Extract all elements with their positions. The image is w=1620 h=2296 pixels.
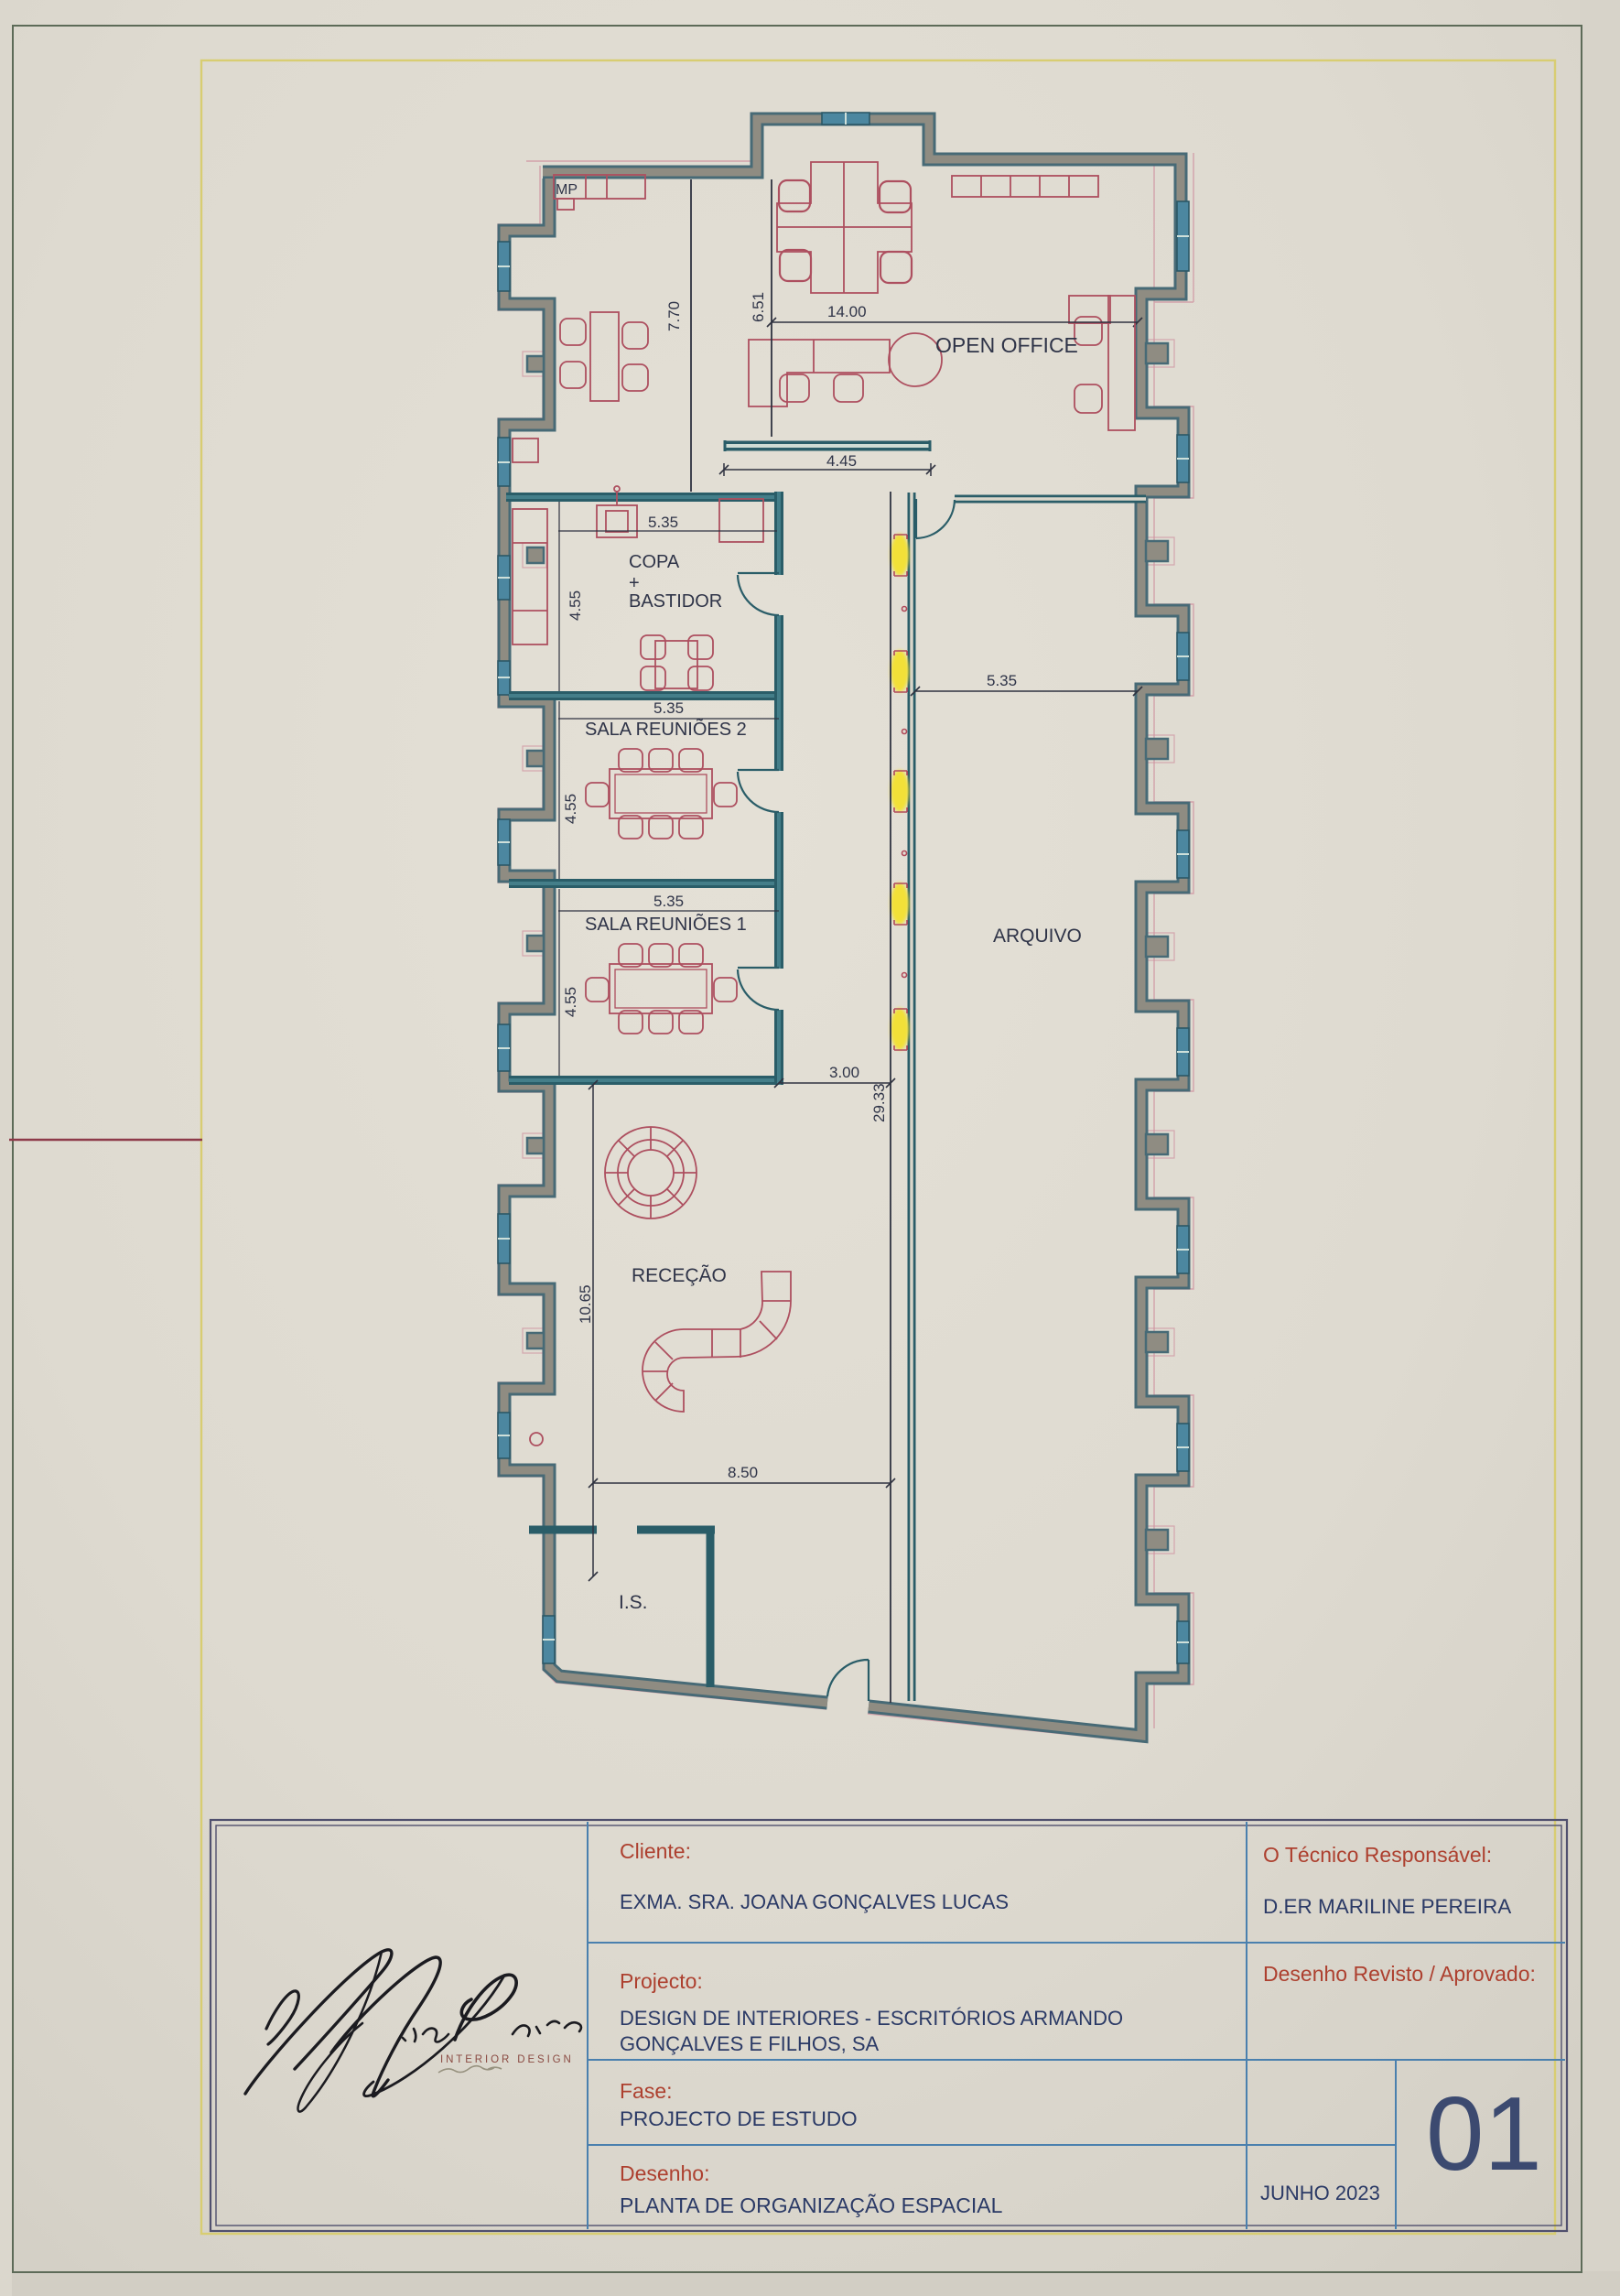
svg-text:COPA: COPA (629, 552, 680, 572)
svg-text:SALA REUNIÕES 1: SALA REUNIÕES 1 (585, 913, 747, 935)
svg-text:ARQUIVO: ARQUIVO (993, 926, 1082, 947)
svg-text:OPEN OFFICE: OPEN OFFICE (935, 333, 1078, 357)
svg-text:PROJECTO DE ESTUDO: PROJECTO DE ESTUDO (620, 2107, 858, 2130)
svg-text:MP: MP (556, 182, 578, 198)
svg-text:EXMA. SRA. JOANA GONÇALVES LUC: EXMA. SRA. JOANA GONÇALVES LUCAS (620, 1890, 1009, 1913)
svg-text:5.35: 5.35 (987, 672, 1017, 689)
svg-text:4.45: 4.45 (826, 452, 857, 470)
svg-text:5.35: 5.35 (653, 699, 684, 717)
svg-text:INTERIOR DESIGN: INTERIOR DESIGN (440, 2054, 574, 2065)
svg-text:Projecto:: Projecto: (620, 1969, 703, 1993)
svg-text:Cliente:: Cliente: (620, 1839, 691, 1863)
svg-text:01: 01 (1426, 2076, 1542, 2193)
svg-text:BASTIDOR: BASTIDOR (629, 591, 722, 612)
svg-text:DESIGN DE INTERIORES - ESCRITÓ: DESIGN DE INTERIORES - ESCRITÓRIOS ARMAN… (620, 2007, 1123, 2030)
svg-text:10.65: 10.65 (577, 1284, 594, 1324)
svg-text:D.ER MARILINE PEREIRA: D.ER MARILINE PEREIRA (1263, 1895, 1511, 1918)
svg-text:7.70: 7.70 (665, 301, 683, 331)
svg-text:4.55: 4.55 (562, 794, 579, 824)
svg-text:RECEÇÃO: RECEÇÃO (632, 1264, 727, 1286)
svg-text:SALA REUNIÕES 2: SALA REUNIÕES 2 (585, 718, 747, 740)
svg-text:5.35: 5.35 (653, 893, 684, 910)
svg-text:29.33: 29.33 (870, 1083, 888, 1122)
svg-text:6.51: 6.51 (750, 292, 767, 322)
svg-text:JUNHO 2023: JUNHO 2023 (1260, 2182, 1380, 2204)
svg-text:GONÇALVES E FILHOS, SA: GONÇALVES E FILHOS, SA (620, 2032, 880, 2055)
svg-text:4.55: 4.55 (562, 987, 579, 1017)
svg-text:8.50: 8.50 (728, 1464, 758, 1481)
svg-text:+: + (629, 573, 640, 593)
svg-text:3.00: 3.00 (829, 1064, 859, 1081)
svg-text:5.35: 5.35 (648, 514, 678, 531)
svg-text:Desenho Revisto / Aprovado:: Desenho Revisto / Aprovado: (1263, 1962, 1536, 1986)
svg-text:PLANTA DE ORGANIZAÇÃO ESPACIAL: PLANTA DE ORGANIZAÇÃO ESPACIAL (620, 2193, 1003, 2217)
svg-text:14.00: 14.00 (827, 303, 867, 320)
svg-text:Fase:: Fase: (620, 2079, 673, 2103)
svg-text:O Técnico Responsável:: O Técnico Responsável: (1263, 1843, 1492, 1867)
svg-text:4.55: 4.55 (567, 590, 584, 621)
svg-text:I.S.: I.S. (619, 1592, 648, 1613)
svg-text:Desenho:: Desenho: (620, 2161, 709, 2185)
